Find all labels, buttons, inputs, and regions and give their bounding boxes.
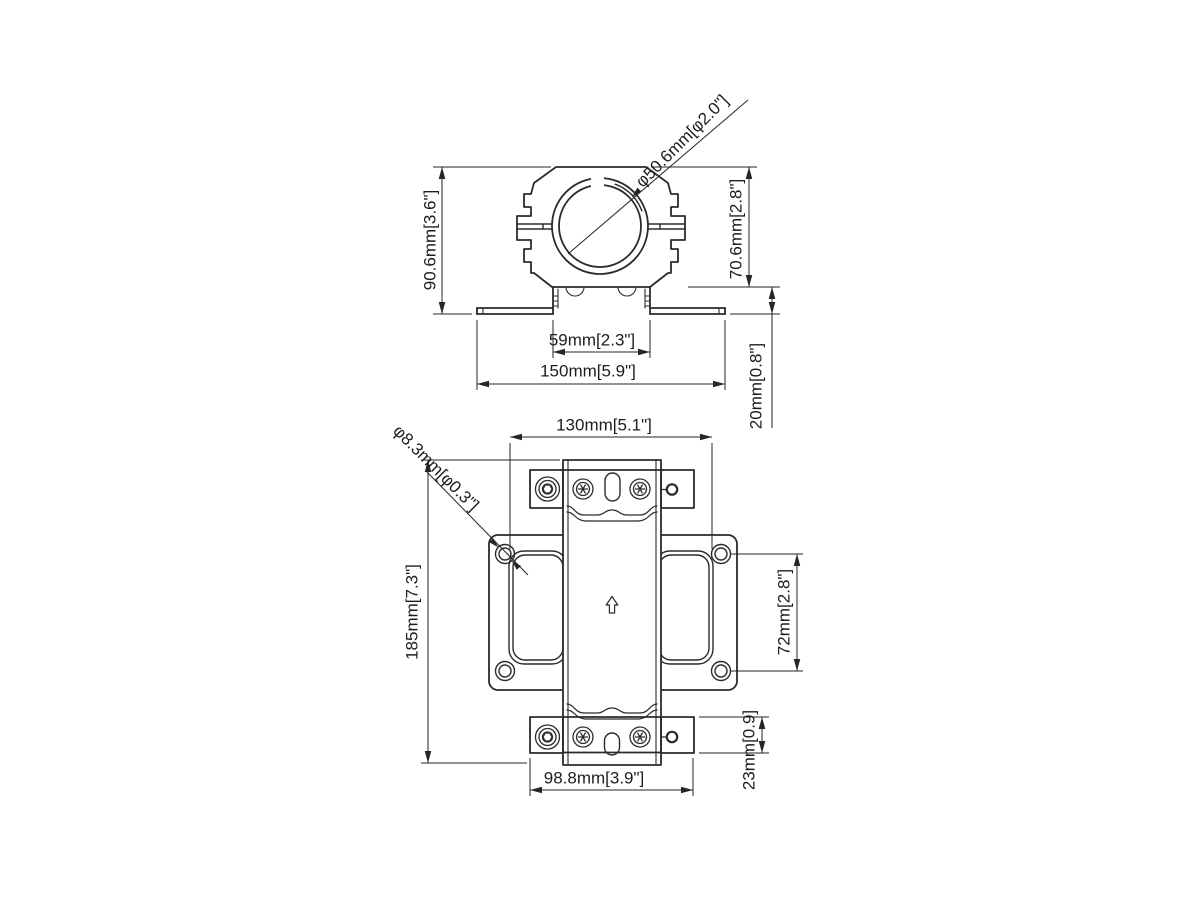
dim-label-clamp-diameter: φ50.6mm[φ2.0"]: [632, 91, 732, 191]
dim-label-hole-diameter: φ8.3mm[φ0.3"]: [389, 421, 482, 514]
front-view-part: [489, 460, 737, 765]
clamp-seam: [517, 224, 685, 229]
mounting-flanges: [477, 308, 725, 314]
dim-label-block-width: 98.8mm[3.9"]: [544, 769, 645, 788]
dim-label-overall-height: 90.6mm[3.6"]: [421, 190, 440, 291]
dim-label-flange-width: 150mm[5.9"]: [540, 362, 636, 381]
dim-label-hole-spacing: 72mm[2.8"]: [775, 569, 794, 655]
ring-gap: [591, 172, 604, 189]
top-view-part: [477, 167, 725, 314]
drawing-canvas: 90.6mm[3.6"] φ50.6mm[φ2.0"] 70.6mm[2.8"]…: [0, 0, 1200, 900]
base-channel: [553, 287, 650, 314]
top-view-dimensions: 90.6mm[3.6"] φ50.6mm[φ2.0"] 70.6mm[2.8"]…: [421, 91, 781, 429]
technical-drawing: 90.6mm[3.6"] φ50.6mm[φ2.0"] 70.6mm[2.8"]…: [0, 0, 1200, 900]
dim-label-overall-height: 185mm[7.3"]: [403, 564, 422, 660]
dim-label-clamp-height: 70.6mm[2.8"]: [727, 179, 746, 280]
tab-bottom-left: [530, 717, 563, 753]
ring-gap: [559, 170, 573, 187]
dim-label-cutout-span: 130mm[5.1"]: [556, 416, 652, 435]
dim-label-block-height: 23mm[0.9]: [740, 710, 759, 790]
locking-pin: [667, 484, 677, 494]
dim-label-channel-width: 59mm[2.3"]: [549, 331, 635, 350]
locking-pin: [667, 732, 677, 742]
dim-label-base-height: 20mm[0.8"]: [747, 343, 766, 429]
